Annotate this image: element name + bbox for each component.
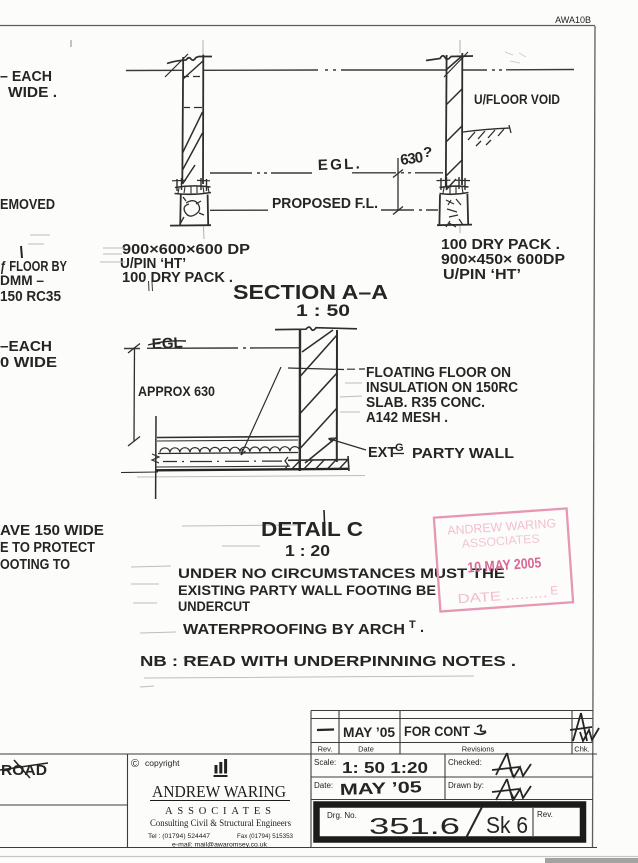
- svg-text:1 : 50: 1 : 50: [296, 301, 350, 320]
- svg-text:1 : 20: 1 : 20: [285, 543, 330, 560]
- svg-text:1: 50 1:20: 1: 50 1:20: [342, 760, 428, 777]
- svg-text:E TO PROTECT: E TO PROTECT: [0, 540, 95, 556]
- svg-text:NB : READ WITH UNDERPINNING: NB : READ WITH UNDERPINNING NOTES .: [140, 653, 516, 670]
- svg-text:ASSOCIATES: ASSOCIATES: [165, 806, 271, 817]
- svg-text:AWA10B: AWA10B: [555, 15, 591, 25]
- svg-text:100 DRY PACK .: 100 DRY PACK .: [122, 270, 233, 286]
- svg-text:Date:: Date:: [314, 781, 333, 790]
- svg-text:Revisions: Revisions: [462, 745, 495, 754]
- svg-text:DETAIL C: DETAIL C: [261, 519, 363, 541]
- svg-text:Tel : (01794) 524447: Tel : (01794) 524447: [148, 833, 210, 840]
- svg-text:100 DRY PACK .: 100 DRY PACK .: [441, 237, 560, 253]
- svg-text:WIDE .: WIDE .: [8, 85, 57, 101]
- svg-text:Fax (01794) 515353: Fax (01794) 515353: [237, 833, 293, 840]
- svg-text:EXT: EXT: [368, 445, 396, 461]
- svg-text:EMOVED: EMOVED: [0, 197, 55, 213]
- svg-text:Drawn by:: Drawn by:: [448, 781, 484, 790]
- svg-text:T: T: [409, 619, 416, 631]
- svg-text:Chk.: Chk.: [574, 745, 589, 754]
- svg-text:A142 MESH .: A142 MESH .: [366, 410, 448, 426]
- svg-text:WATERPROOFING BY ARCH: WATERPROOFING BY ARCH: [183, 622, 405, 638]
- svg-text:PROPOSED F.L.: PROPOSED F.L.: [272, 196, 378, 212]
- svg-text:U/PIN ‘HT’: U/PIN ‘HT’: [443, 267, 521, 283]
- svg-text:Date: Date: [358, 745, 374, 754]
- svg-text:?: ?: [423, 144, 432, 161]
- svg-text:0 WIDE: 0 WIDE: [0, 355, 57, 371]
- svg-text:351.6: 351.6: [369, 813, 460, 839]
- svg-text:900×450× 600DP: 900×450× 600DP: [441, 252, 565, 268]
- svg-text:G: G: [395, 442, 404, 454]
- svg-text:– EACH: – EACH: [0, 69, 52, 85]
- svg-text:Drg. No.: Drg. No.: [327, 811, 357, 820]
- svg-text:e-mail: mail@awaromsey.co.uk: e-mail: mail@awaromsey.co.uk: [172, 842, 268, 849]
- svg-text:DMM –: DMM –: [0, 273, 44, 288]
- svg-text:SLAB. R35 CONC.: SLAB. R35 CONC.: [366, 395, 485, 411]
- svg-text:AVE 150 WIDE: AVE 150 WIDE: [0, 523, 104, 539]
- svg-text:copyright: copyright: [145, 758, 180, 768]
- svg-text:Rev.: Rev.: [537, 810, 553, 819]
- svg-text:FOR CONT: FOR CONT: [404, 723, 470, 739]
- svg-text:.: .: [420, 620, 424, 636]
- svg-text:Checked:: Checked:: [448, 758, 482, 767]
- svg-text:©: ©: [131, 758, 139, 770]
- svg-text:PARTY WALL: PARTY WALL: [412, 446, 514, 462]
- svg-text:E: E: [550, 583, 559, 598]
- svg-text:–EACH: –EACH: [0, 339, 52, 355]
- svg-text:Sk 6: Sk 6: [486, 812, 528, 838]
- svg-text:Rev.: Rev.: [318, 745, 333, 754]
- svg-text:UNDER NO CIRCUMSTANCES MUST TH: UNDER NO CIRCUMSTANCES MUST THE: [178, 566, 505, 582]
- svg-text:U/FLOOR VOID: U/FLOOR VOID: [474, 92, 560, 107]
- svg-text:FLOATING FLOOR ON: FLOATING FLOOR ON: [366, 365, 511, 381]
- svg-text:INSULATION ON 150RC: INSULATION ON 150RC: [366, 380, 518, 396]
- svg-text:MAY ’05: MAY ’05: [340, 779, 423, 799]
- svg-text:UNDERCUT: UNDERCUT: [178, 599, 250, 615]
- svg-text:APPROX 630: APPROX 630: [138, 383, 215, 399]
- svg-text:Scale:: Scale:: [314, 758, 336, 767]
- svg-text:EXISTING PARTY WALL FOOTING BE: EXISTING PARTY WALL FOOTING BE: [178, 583, 436, 599]
- svg-text:Consulting Civil & Structural: Consulting Civil & Structural Engineers: [150, 818, 291, 829]
- svg-text:MAY ’05: MAY ’05: [343, 724, 395, 740]
- svg-text:630: 630: [399, 149, 424, 169]
- svg-text:150 RC35: 150 RC35: [0, 289, 61, 305]
- svg-text:OOTING TO: OOTING TO: [0, 557, 70, 573]
- svg-text:ANDREW WARING: ANDREW WARING: [152, 782, 286, 801]
